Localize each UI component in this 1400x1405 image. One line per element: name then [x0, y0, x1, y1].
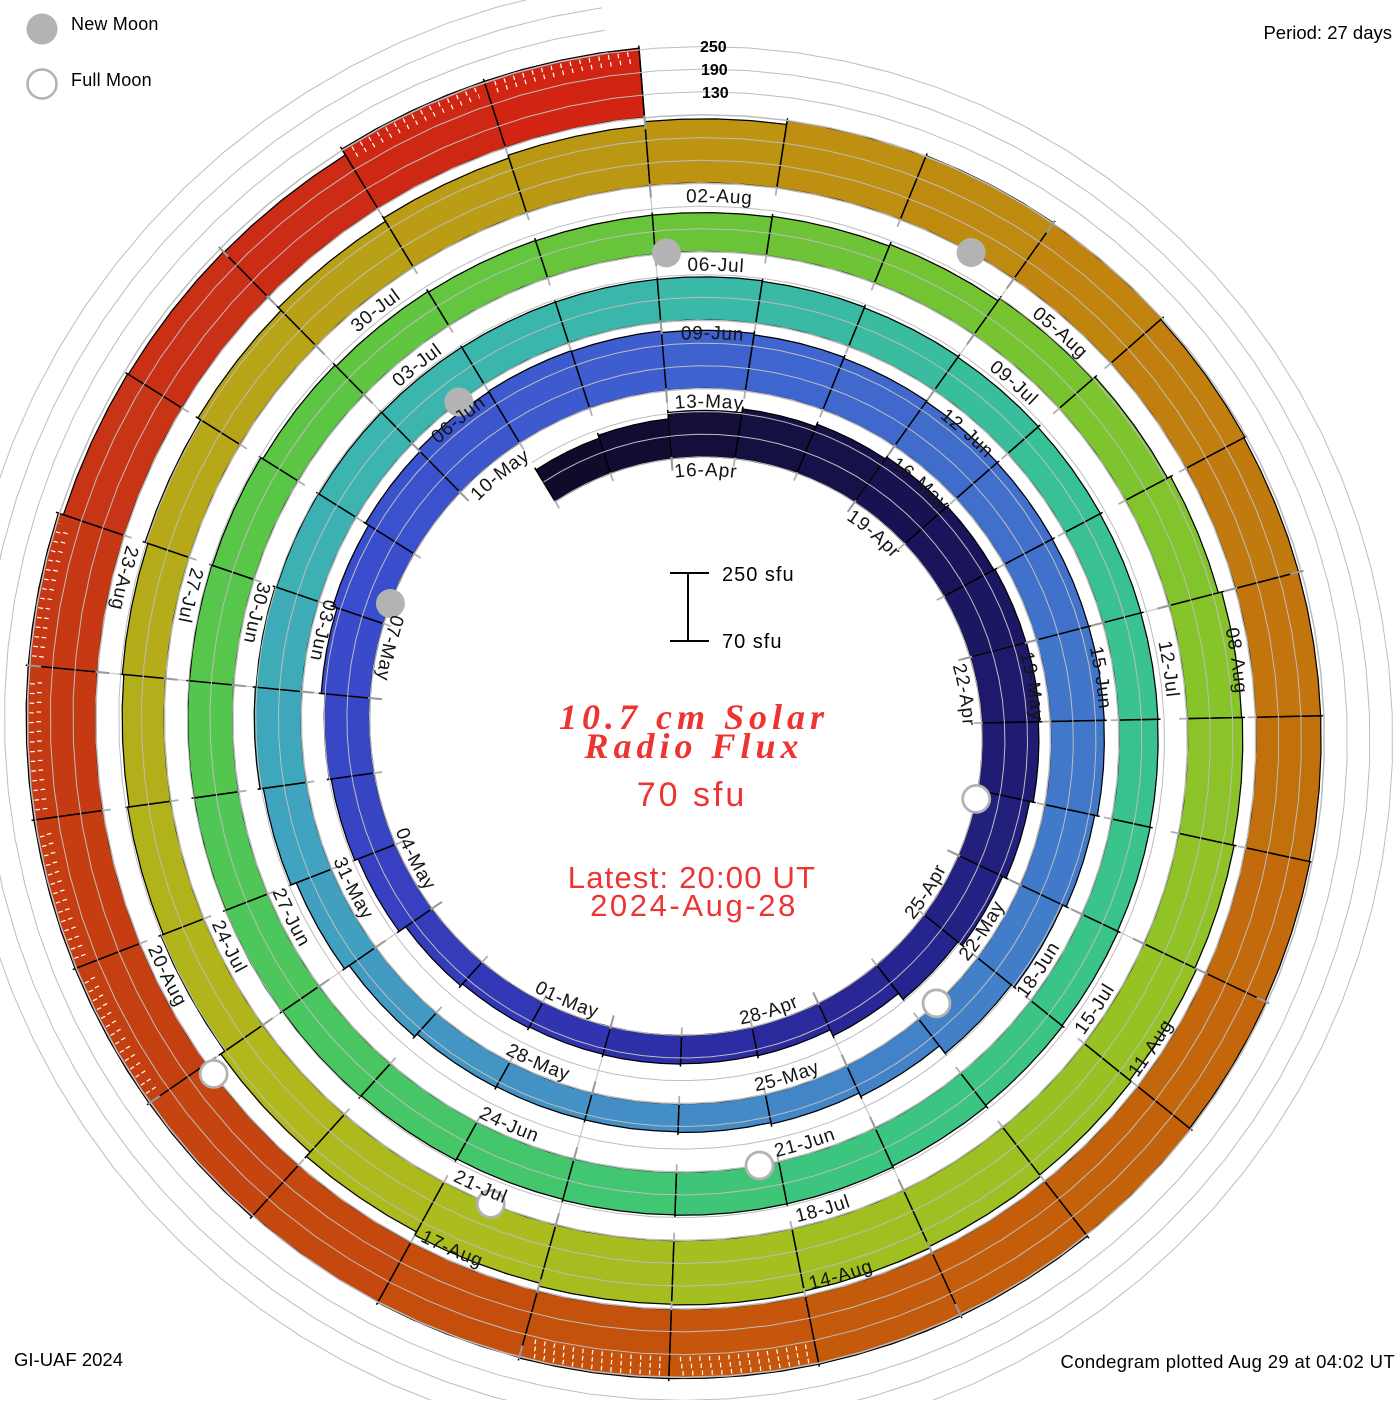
svg-text:Radio Flux: Radio Flux [583, 726, 803, 766]
svg-text:06-Jul: 06-Jul [687, 255, 745, 278]
svg-text:70 sfu: 70 sfu [637, 776, 748, 814]
svg-text:190: 190 [701, 62, 728, 79]
svg-text:02-Aug: 02-Aug [686, 186, 753, 209]
svg-text:250 sfu: 250 sfu [722, 564, 795, 586]
svg-text:New Moon: New Moon [71, 14, 159, 34]
svg-text:GI-UAF 2024: GI-UAF 2024 [14, 1349, 123, 1370]
svg-text:16-Apr: 16-Apr [673, 460, 738, 483]
svg-text:Condegram plotted Aug 29 at 04: Condegram plotted Aug 29 at 04:02 UT [1060, 1351, 1395, 1372]
svg-text:Period: 27 days: Period: 27 days [1263, 22, 1392, 43]
svg-text:2024-Aug-28: 2024-Aug-28 [590, 888, 798, 923]
svg-text:Full Moon: Full Moon [71, 70, 152, 90]
svg-text:250: 250 [700, 39, 727, 56]
svg-text:130: 130 [702, 85, 729, 102]
svg-text:09-Jun: 09-Jun [681, 323, 745, 346]
svg-text:70 sfu: 70 sfu [722, 631, 782, 653]
